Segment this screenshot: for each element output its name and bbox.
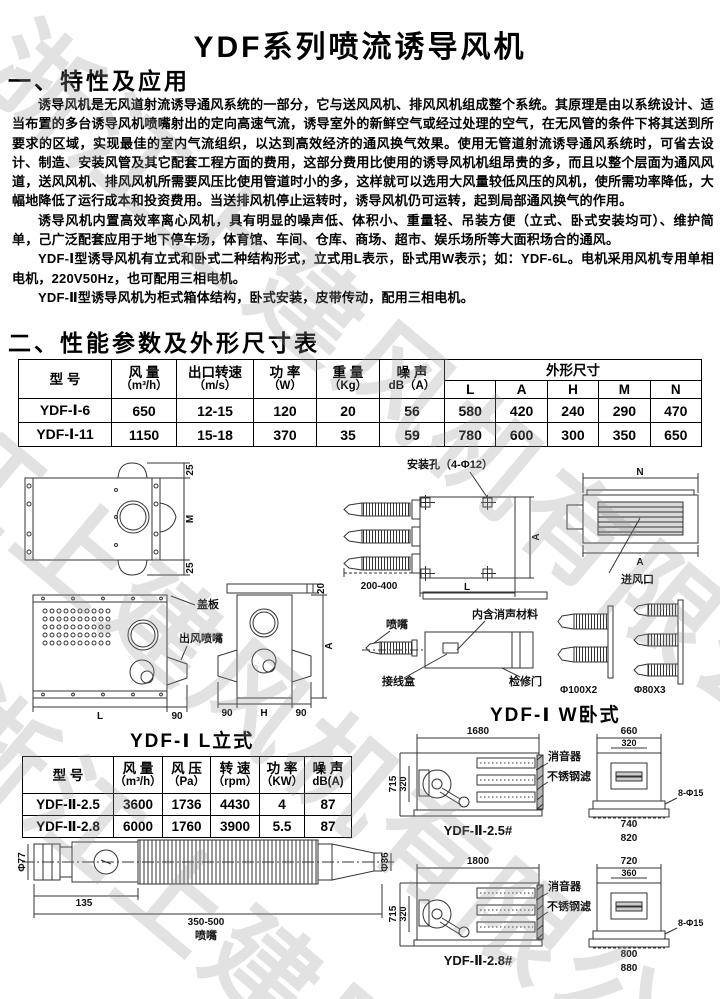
dim-a: A (636, 557, 643, 568)
dim-135: 135 (76, 898, 93, 909)
dim-phi77: Φ77 (17, 852, 28, 872)
cell-power: 4 (260, 794, 305, 816)
col-pressure: 风 压（Pa） (163, 757, 211, 794)
dim-base1: 740 (621, 819, 638, 830)
drawing-unit-2-5: 1680 715 320 消音器 不锈钢滤 YDF-Ⅱ-2.5# 660 320… (392, 722, 712, 844)
silencer-channels (477, 888, 535, 932)
col-noise: 噪 声dB(A) (305, 757, 352, 794)
dim-200-400: 200-400 (361, 581, 398, 592)
cell-rpm: 4430 (211, 794, 260, 816)
cell-dim-m: 290 (599, 399, 650, 423)
dim-n: N (636, 467, 643, 478)
cell-model: YDF-Ⅰ-6 (19, 399, 112, 423)
drawing-nozzle-detail: Φ77 Φ36 135 350-500 喷嘴 (22, 838, 397, 943)
dim-90-side-right: 90 (295, 708, 307, 719)
dim-h-inner: 320 (398, 906, 408, 921)
cell-airflow: 6000 (114, 816, 163, 838)
junction-box-label: 接线盒 (382, 674, 416, 688)
catalog-page: YDF系列喷流诱导风机 一、特性及应用 诱导风机是无风道射流诱导通风系统的一部分… (0, 0, 720, 999)
table-row: YDF-Ⅰ-6 650 12-15 120 20 56 580 420 240 … (19, 399, 702, 423)
cell-noise: 87 (305, 816, 352, 838)
col-dim-h: H (547, 381, 598, 399)
col-dim-n: N (650, 381, 701, 399)
dim-25-top: 25 (185, 464, 196, 476)
liner-label: 内含消声材料 (472, 607, 538, 621)
section-heading-features: 一、特性及应用 (8, 62, 190, 96)
table-row: YDF-Ⅱ-2.8 6000 1760 3900 5.5 87 (23, 816, 352, 838)
cell-dim-a: 600 (496, 423, 547, 447)
cell-dim-n: 650 (650, 423, 701, 447)
nozzle-caption: 喷嘴 (195, 928, 217, 942)
page-title: YDF系列喷流诱导风机 (0, 22, 720, 66)
perforation-grid (43, 609, 110, 645)
cell-dim-a: 420 (496, 399, 547, 423)
cover-plate-label: 盖板 (197, 597, 220, 611)
holes-label: 8-Φ15 (678, 918, 703, 928)
drawing-horizontal-unit: 喷嘴 内含消声材料 接线盒 检修门 Φ100X2 Φ80X3 (362, 592, 718, 704)
cell-model: YDF-Ⅰ-11 (19, 423, 112, 447)
dim-base2: 880 (621, 963, 638, 974)
dim-a: A (324, 642, 335, 649)
col-model: 型 号 (19, 360, 112, 399)
access-door-label: 检修门 (509, 674, 542, 688)
col-noise: 噪 声dB（A） (380, 360, 445, 399)
cell-noise: 59 (380, 423, 445, 447)
dim-h-inner: 320 (398, 776, 408, 791)
col-dim-a: A (496, 381, 547, 399)
col-power: 功 率（KW） (260, 757, 305, 794)
dim-25-bottom: 25 (185, 562, 196, 574)
cell-rpm: 3900 (211, 816, 260, 838)
table-header-row: 型 号 风 量（m³/h） 风 压（Pa） 转 速（rpm） 功 率（KW） 噪… (23, 757, 352, 794)
drawing-topview: 25 M 25 (12, 460, 202, 592)
col-power: 功 率（W） (254, 360, 317, 399)
paragraph: 诱导风机是无风道射流诱导通风系统的一部分，它与送风风机、排风风机组成整个系统。其… (12, 95, 714, 211)
dim-width: 1680 (467, 726, 490, 737)
outlet-nozzle-label: 出风喷嘴 (179, 631, 223, 645)
table-header-row: 型 号 风 量（m³/h） 出口转速（m/s） 功 率（W） 重 量（Kg） 噪… (19, 360, 702, 381)
filter-label: 不锈钢滤 (547, 899, 591, 913)
filter-label: 不锈钢滤 (547, 769, 591, 783)
dim-base2: 820 (621, 833, 638, 844)
paragraph: YDF-Ⅰ型诱导风机有立式和卧式二种结构形式，立式用L表示，卧式用W表示；如：Y… (12, 249, 714, 288)
table-row: YDF-Ⅱ-2.5 3600 1736 4430 4 87 (23, 794, 352, 816)
drawing-vertical-unit: 盖板 出风喷嘴 L 90 20 90 H 90 A (15, 576, 360, 728)
cell-dim-h: 240 (547, 399, 598, 423)
section-heading-specs: 二、性能参数及外形尺寸表 (8, 324, 320, 358)
cell-power: 370 (254, 423, 317, 447)
cell-speed: 15-18 (177, 423, 254, 447)
col-model: 型 号 (23, 757, 114, 794)
col-dim-m: M (599, 381, 650, 399)
unit-caption: YDF-Ⅱ-2.8# (444, 953, 513, 968)
performance-table-ydf2: 型 号 风 量（m³/h） 风 压（Pa） 转 速（rpm） 功 率（KW） 噪… (22, 756, 352, 838)
drawing-mounting-plan: 安装孔（4-Φ12） 200-400 L (332, 455, 567, 603)
dim-20: 20 (316, 583, 327, 595)
cell-pressure: 1736 (163, 794, 211, 816)
cell-dim-h: 300 (547, 423, 598, 447)
dim-h: H (260, 708, 267, 719)
col-airflow: 风 量（m³/h） (114, 757, 163, 794)
phi80-label: Φ80X3 (634, 685, 666, 696)
cell-airflow: 1150 (112, 423, 177, 447)
dim-base1: 800 (621, 949, 638, 960)
holes-label: 8-Φ15 (678, 788, 703, 798)
cell-speed: 12-15 (177, 399, 254, 423)
dim-width: 1800 (467, 856, 490, 867)
dim-end-top: 720 (621, 856, 638, 867)
dim-m: M (185, 515, 196, 523)
col-weight: 重 量（Kg） (317, 360, 380, 399)
cell-dim-m: 350 (599, 423, 650, 447)
cell-model: YDF-Ⅱ-2.5 (23, 794, 114, 816)
dim-end-inner: 360 (621, 868, 636, 878)
cell-pressure: 1760 (163, 816, 211, 838)
nozzle-label: 喷嘴 (386, 617, 408, 631)
cell-noise: 87 (305, 794, 352, 816)
silencer-channels (477, 758, 535, 802)
col-airflow: 风 量（m³/h） (112, 360, 177, 399)
cell-weight: 20 (317, 399, 380, 423)
cell-power: 120 (254, 399, 317, 423)
drawing-inlet-view: N A 进风口 (563, 465, 715, 590)
dim-a: A (531, 533, 542, 540)
dim-phi36: Φ36 (380, 852, 391, 872)
unit-caption: YDF-Ⅱ-2.5# (444, 823, 513, 838)
muffler-label: 消音器 (548, 749, 582, 763)
cell-model: YDF-Ⅱ-2.8 (23, 816, 114, 838)
muffler-label: 消音器 (548, 879, 582, 893)
paragraph: YDF-Ⅱ型诱导风机为柜式箱体结构，卧式安装，皮带传动，配用三相电机。 (12, 288, 714, 307)
dim-end-top: 660 (621, 726, 638, 737)
col-dim-l: L (445, 381, 496, 399)
cell-airflow: 3600 (114, 794, 163, 816)
drawing-unit-2-8: 1800 715 320 消音器 不锈钢滤 YDF-Ⅱ-2.8# 720 360… (392, 852, 712, 974)
cell-weight: 35 (317, 423, 380, 447)
col-outlet-speed: 出口转速（m/s） (177, 360, 254, 399)
cell-airflow: 650 (112, 399, 177, 423)
performance-table-ydf1: 型 号 风 量（m³/h） 出口转速（m/s） 功 率（W） 重 量（Kg） 噪… (18, 359, 702, 447)
dim-350-500: 350-500 (188, 917, 225, 928)
cell-dim-n: 470 (650, 399, 701, 423)
col-dimensions: 外形尺寸 (445, 360, 702, 381)
table-row: YDF-Ⅰ-11 1150 15-18 370 35 59 780 600 30… (19, 423, 702, 447)
caption-vertical-unit: YDF-Ⅰ L立式 (130, 726, 254, 753)
cell-dim-l: 580 (445, 399, 496, 423)
phi100-label: Φ100X2 (560, 685, 598, 696)
dim-90-side-left: 90 (221, 708, 233, 719)
col-rpm: 转 速（rpm） (211, 757, 260, 794)
dim-end-inner: 320 (621, 738, 636, 748)
drawings-canvas: 25 M 25 安装孔（4-Φ12） (0, 450, 720, 999)
cell-dim-l: 780 (445, 423, 496, 447)
dim-l: L (97, 711, 103, 722)
features-paragraphs: 诱导风机是无风道射流诱导通风系统的一部分，它与送风风机、排风风机组成整个系统。其… (12, 95, 714, 307)
inlet-label: 进风口 (621, 572, 654, 586)
dim-90-front: 90 (171, 711, 183, 722)
cell-power: 5.5 (260, 816, 305, 838)
paragraph: 诱导风机内置高效率离心风机，具有明显的噪声低、体积小、重量轻、吊装方便（立式、卧… (12, 211, 714, 250)
cell-noise: 56 (380, 399, 445, 423)
mounting-holes-label: 安装孔（4-Φ12） (407, 457, 493, 471)
